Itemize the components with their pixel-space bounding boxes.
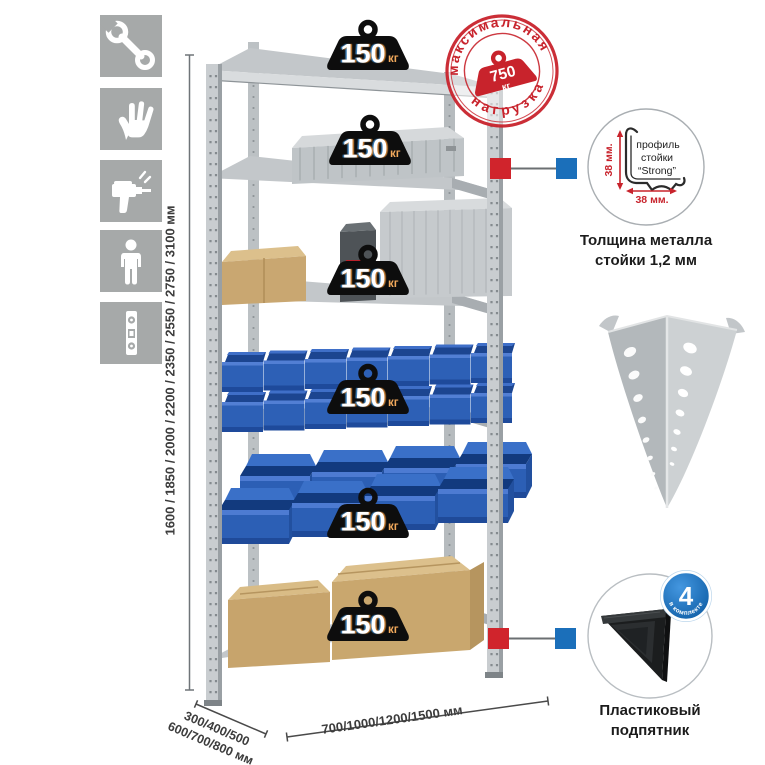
red-marker (488, 628, 509, 649)
svg-text:150: 150 (340, 264, 385, 294)
blue-marker (556, 158, 577, 179)
svg-text:кг: кг (390, 148, 401, 160)
blue-marker (555, 628, 576, 649)
height-dimension-label: 1600 / 1850 / 2000 / 2200 / 2350 / 2550 … (163, 111, 178, 631)
shelf-load-weights: 150 кг 150 кг 150 кг 150 кг 150 кг (327, 23, 411, 642)
svg-text:150: 150 (340, 39, 385, 69)
rack-diagram: 150 кг 150 кг 150 кг 150 кг 150 кг (0, 0, 765, 765)
svg-text:кг: кг (388, 53, 399, 65)
svg-text:кг: кг (388, 624, 399, 636)
svg-text:38 мм.: 38 мм. (635, 194, 668, 206)
profile-callout: 38 мм. 38 мм. профиль стойки “Strong” (588, 109, 704, 225)
product-infographic: 150 кг 150 кг 150 кг 150 кг 150 кг (0, 0, 765, 765)
svg-text:кг: кг (388, 521, 399, 533)
svg-text:150: 150 (342, 134, 387, 164)
weight-label: 150 кг (329, 118, 411, 166)
foot-connector (488, 628, 576, 649)
profile-caption: Толщина металла стойки 1,2 мм (546, 231, 746, 272)
svg-text:150: 150 (340, 610, 385, 640)
height-dimension-line (185, 55, 194, 690)
profile-connector (490, 158, 577, 179)
weight-label: 150 кг (327, 23, 409, 71)
included-badge: 4 в комплекте (661, 571, 712, 622)
cardboard-box-small (222, 246, 306, 305)
svg-text:профиль: профиль (636, 139, 680, 151)
svg-text:150: 150 (340, 507, 385, 537)
svg-text:“Strong”: “Strong” (638, 165, 676, 177)
svg-text:150: 150 (340, 383, 385, 413)
svg-text:стойки: стойки (641, 152, 673, 164)
svg-text:кг: кг (388, 397, 399, 409)
red-marker (490, 158, 511, 179)
angle-profile-image (599, 315, 745, 508)
badge-count: 4 (679, 581, 694, 611)
foot-callout: 4 в комплекте (588, 571, 712, 699)
svg-text:38 мм.: 38 мм. (603, 143, 615, 176)
svg-text:кг: кг (388, 278, 399, 290)
foot-caption: Пластиковый подпятник (550, 701, 750, 742)
